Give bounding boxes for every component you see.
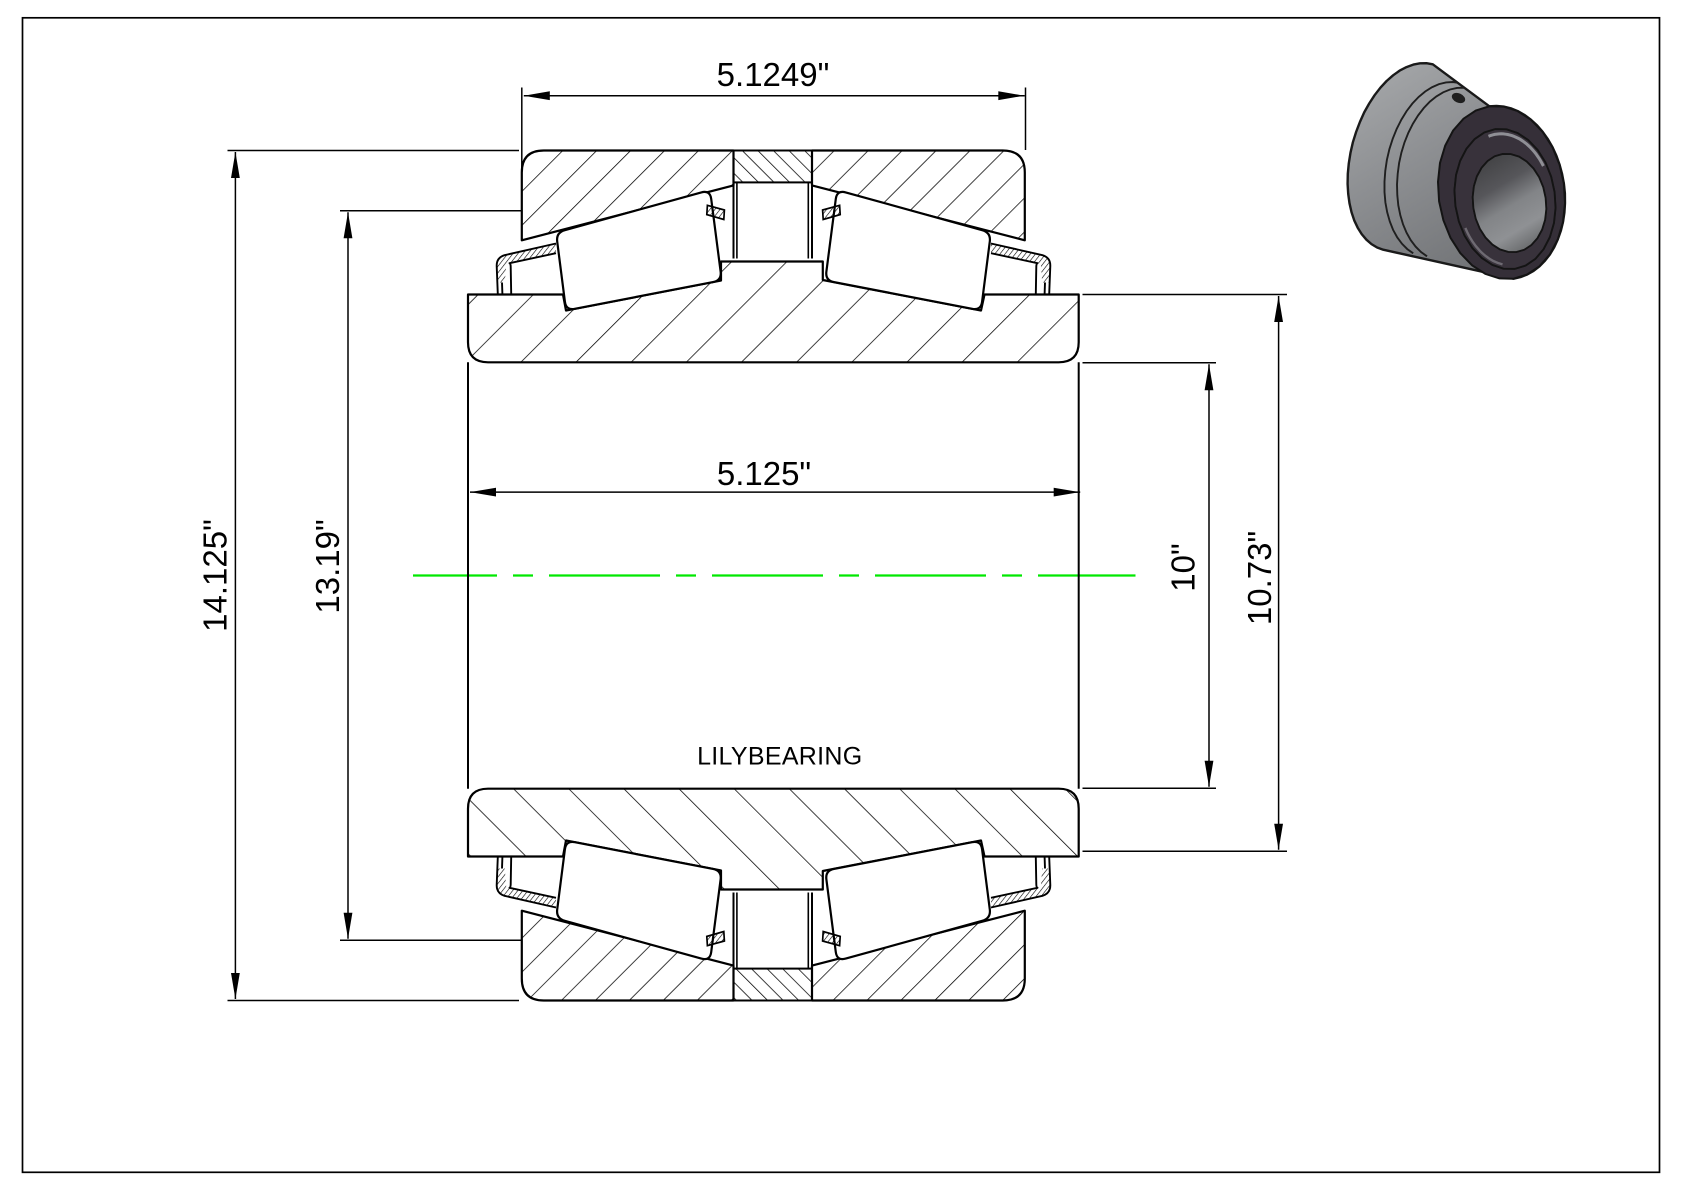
svg-text:13.19": 13.19" bbox=[309, 519, 346, 613]
svg-text:5.1249": 5.1249" bbox=[717, 56, 830, 93]
svg-text:LILYBEARING: LILYBEARING bbox=[697, 743, 862, 771]
svg-text:5.125": 5.125" bbox=[717, 455, 811, 492]
svg-text:10": 10" bbox=[1165, 543, 1202, 591]
svg-text:14.125": 14.125" bbox=[197, 519, 234, 632]
svg-text:10.73": 10.73" bbox=[1241, 531, 1278, 625]
